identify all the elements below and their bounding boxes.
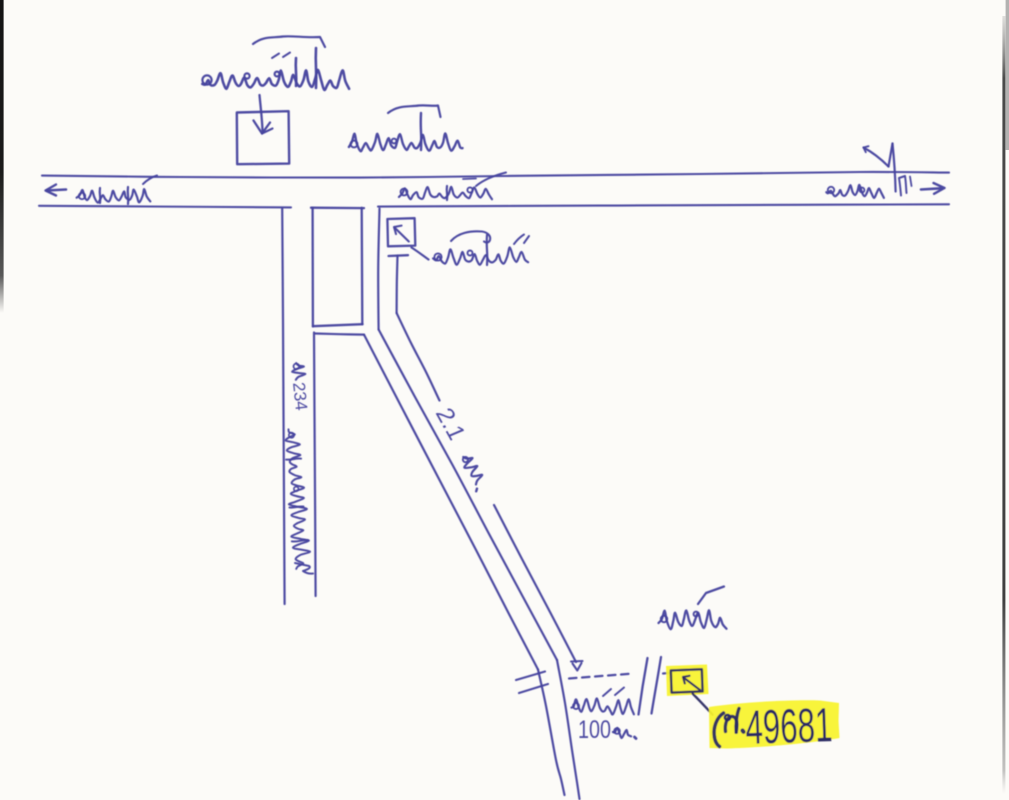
svg-text:234: 234 bbox=[289, 381, 311, 411]
svg-text:100: 100 bbox=[578, 716, 611, 744]
svg-text:49681: 49681 bbox=[745, 699, 834, 755]
